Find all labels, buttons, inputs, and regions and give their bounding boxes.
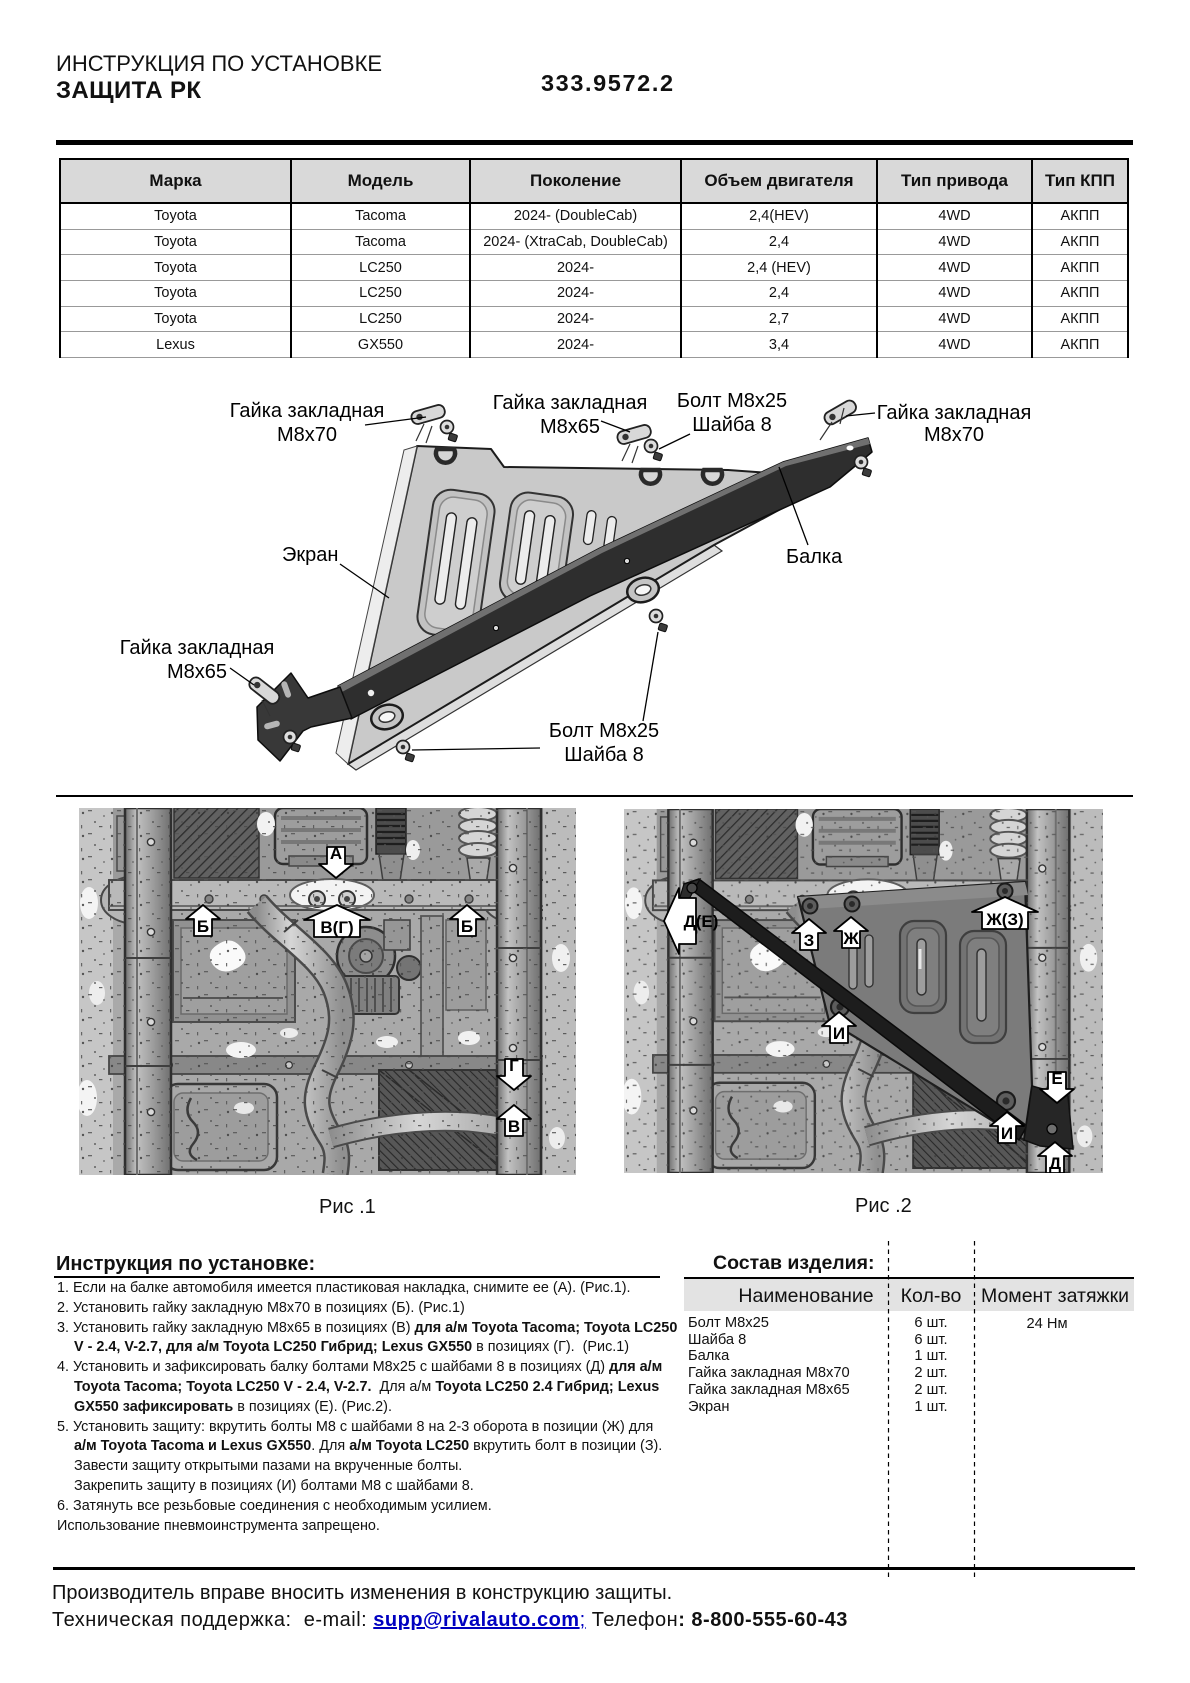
svg-text:А: А bbox=[330, 844, 342, 863]
svg-text:В(Г): В(Г) bbox=[320, 918, 353, 937]
svg-text:Гайка закладная: Гайка закладная bbox=[120, 637, 275, 659]
svg-text:Гайка закладная: Гайка закладная bbox=[230, 400, 385, 422]
svg-text:Б: Б bbox=[461, 917, 473, 936]
svg-text:Г: Г bbox=[509, 1056, 519, 1075]
svg-text:М8х70: М8х70 bbox=[924, 424, 984, 446]
svg-text:Д: Д bbox=[1049, 1154, 1061, 1173]
svg-text:Ж: Ж bbox=[842, 929, 859, 948]
svg-text:Е: Е bbox=[1051, 1069, 1062, 1088]
svg-text:И: И bbox=[833, 1024, 845, 1043]
svg-text:Б: Б bbox=[197, 917, 209, 936]
svg-text:М8х70: М8х70 bbox=[277, 424, 337, 446]
svg-text:Шайба 8: Шайба 8 bbox=[692, 414, 771, 436]
svg-text:Д(Е): Д(Е) bbox=[684, 912, 719, 931]
svg-text:Балка: Балка bbox=[786, 546, 843, 568]
svg-text:Болт М8х25: Болт М8х25 bbox=[549, 720, 659, 742]
svg-text:Гайка закладная: Гайка закладная bbox=[493, 392, 648, 414]
svg-text:Экран: Экран bbox=[282, 544, 338, 566]
svg-text:Шайба 8: Шайба 8 bbox=[564, 744, 643, 766]
svg-text:М8х65: М8х65 bbox=[167, 661, 227, 683]
svg-text:И: И bbox=[1001, 1124, 1013, 1143]
svg-text:М8х65: М8х65 bbox=[540, 416, 600, 438]
svg-text:Ж(З): Ж(З) bbox=[985, 910, 1023, 929]
svg-text:Гайка закладная: Гайка закладная bbox=[877, 402, 1032, 424]
svg-text:З: З bbox=[804, 931, 815, 950]
svg-text:В: В bbox=[508, 1117, 520, 1136]
svg-text:Болт М8х25: Болт М8х25 bbox=[677, 390, 787, 412]
